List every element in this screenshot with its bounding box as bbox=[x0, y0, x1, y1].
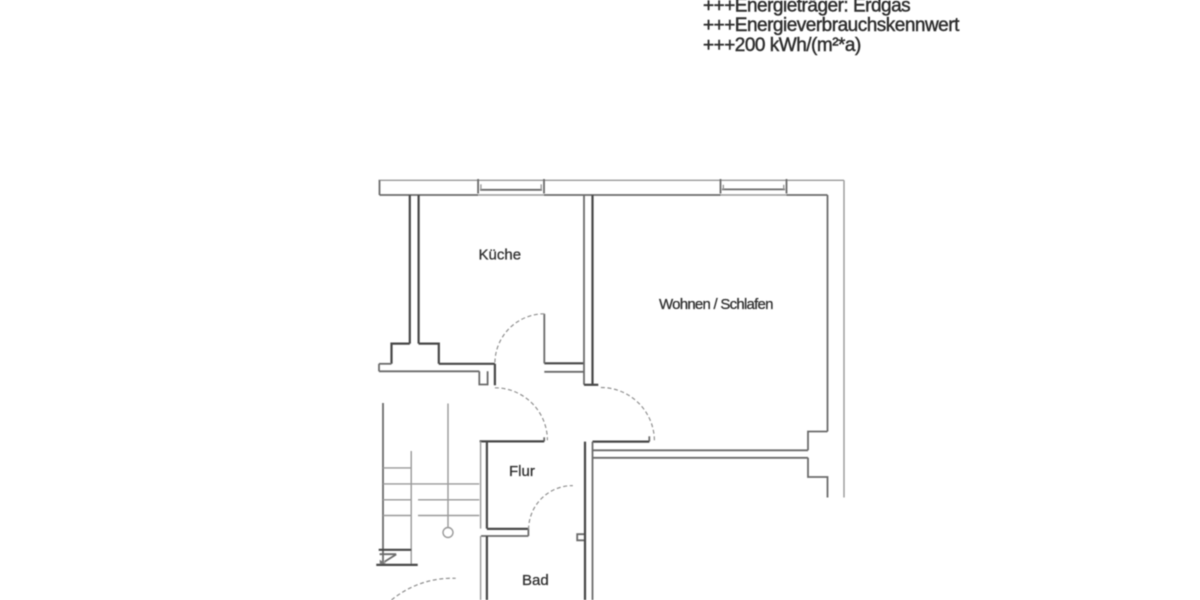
svg-text:+++Energieverbrauchskennwert: +++Energieverbrauchskennwert bbox=[703, 15, 960, 36]
svg-text:Küche: Küche bbox=[479, 247, 522, 264]
svg-text:+++200 kWh/(m²*a): +++200 kWh/(m²*a) bbox=[703, 35, 861, 56]
svg-text:Flur: Flur bbox=[509, 463, 535, 480]
svg-text:Wohnen / Schlafen: Wohnen / Schlafen bbox=[659, 296, 773, 313]
svg-text:Bad: Bad bbox=[522, 572, 549, 589]
